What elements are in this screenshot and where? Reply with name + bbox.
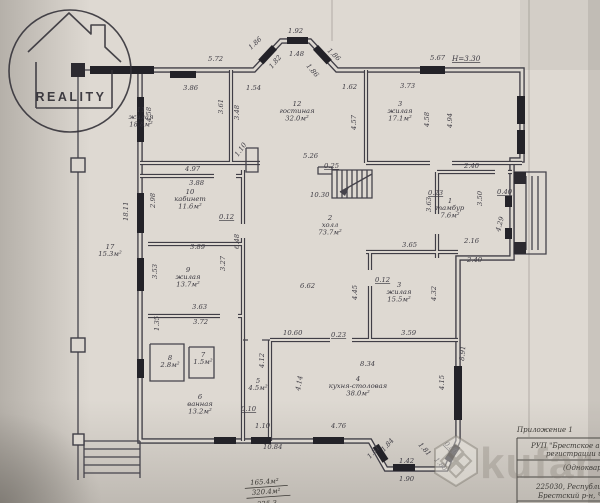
- column-post: [514, 172, 526, 184]
- dimension-label: 3.59: [401, 329, 417, 337]
- secondary-area-value: 325.3: [257, 499, 278, 503]
- dimension-label: 5.26: [303, 152, 319, 160]
- dimension-label: 6.48: [233, 233, 241, 249]
- dimension-label: 1.35: [153, 316, 161, 331]
- window-mark: [517, 130, 525, 154]
- window-mark: [287, 37, 308, 44]
- dimension-label: 4.58: [145, 106, 153, 123]
- dimension-label: 3.63: [192, 303, 207, 311]
- dimension-label: 1.92: [288, 27, 303, 35]
- dimension-label: 1.54: [246, 84, 261, 92]
- dimension-label: 6.62: [300, 282, 315, 290]
- dimension-label: 0.12: [375, 276, 390, 284]
- window-mark: [214, 437, 236, 444]
- dimension-label: 3.48: [233, 104, 241, 120]
- dimension-label: 3.61: [217, 99, 225, 114]
- dimension-label: 0.40: [497, 188, 513, 196]
- window-mark: [90, 66, 154, 74]
- dimension-label: 18.11: [122, 202, 130, 221]
- reality-logo-text: REALITY: [36, 90, 107, 104]
- window-mark: [454, 366, 462, 420]
- dimension-label: 1.10: [255, 422, 271, 430]
- dimension-label: 3.86: [183, 84, 199, 92]
- dimension-label: 3.27: [219, 255, 227, 271]
- dimension-label: 0.12: [219, 213, 234, 221]
- door-jamb-mark: [505, 228, 512, 239]
- ceiling-height-note: Н=3.30: [451, 54, 481, 63]
- kufar-watermark: kufar: [435, 436, 593, 488]
- dimension-label: 3.72: [193, 318, 208, 326]
- window-mark: [393, 464, 415, 471]
- window-mark: [137, 193, 144, 233]
- door-jamb-mark: [505, 196, 512, 207]
- dimension-label: 5.67: [430, 54, 446, 62]
- dimension-label: 4.15: [438, 375, 446, 391]
- dimension-label: 1.62: [342, 83, 357, 91]
- dimension-label: 4.94: [446, 113, 454, 129]
- dimension-label: 2.16: [463, 237, 480, 245]
- dimension-label: 3.89: [190, 243, 206, 251]
- floor-plan-photo: 11жилая18.8м²12гостиная32.0м²3жилая17.1м…: [0, 0, 600, 503]
- dimension-label: 4.97: [184, 165, 201, 173]
- dimension-label: 0.10: [241, 405, 257, 413]
- dimension-label: 5.72: [208, 55, 223, 63]
- dimension-label: 4.76: [330, 422, 347, 430]
- dimension-label: 2.98: [149, 192, 157, 209]
- column-post: [71, 158, 85, 172]
- column-post: [71, 338, 85, 352]
- dimension-label: 0.25: [324, 162, 339, 170]
- dimension-label: 4.32: [430, 286, 438, 302]
- annex-label: Приложение 1: [516, 426, 573, 434]
- window-mark: [137, 258, 144, 291]
- dimension-label: 3.88: [189, 179, 205, 187]
- kufar-logo-text: kufar: [480, 439, 593, 488]
- dimension-label: 3.63: [425, 197, 433, 212]
- dimension-label: 3.50: [476, 190, 484, 206]
- column-post: [71, 63, 85, 77]
- dimension-label: 10.84: [263, 443, 282, 451]
- dimension-label: 8.91: [458, 345, 467, 361]
- dimension-label: 2.40: [466, 256, 483, 264]
- window-mark: [517, 96, 525, 124]
- dimension-label: 10.30: [310, 191, 330, 199]
- dimension-label: 4.45: [351, 285, 359, 301]
- dimension-label: 1.42: [399, 457, 414, 465]
- dimension-label: 0.23: [428, 189, 443, 197]
- floor-plan-canvas: 11жилая18.8м²12гостиная32.0м²3жилая17.1м…: [0, 0, 600, 503]
- dimension-label: 4.57: [350, 114, 358, 131]
- column-post: [73, 434, 84, 445]
- dimension-label: 0.23: [331, 331, 346, 339]
- dimension-label: 2.40: [463, 162, 480, 170]
- window-mark: [170, 71, 196, 78]
- dimension-label: 8.34: [360, 360, 375, 368]
- dimension-label: 10.60: [283, 329, 303, 337]
- address-line: Брестский р-н, Чер: [537, 492, 600, 500]
- dimension-label: 3.53: [151, 264, 159, 279]
- dimension-label: 3.73: [400, 82, 415, 90]
- column-post: [514, 242, 526, 254]
- window-mark: [420, 66, 445, 74]
- dimension-label: 1.48: [289, 50, 305, 58]
- dimension-label: 1.90: [399, 475, 415, 483]
- window-mark: [137, 359, 144, 378]
- dimension-label: 4.58: [423, 111, 431, 128]
- dimension-label: 4.12: [258, 353, 266, 369]
- dimension-label: 3.65: [402, 241, 417, 249]
- window-mark: [313, 437, 344, 444]
